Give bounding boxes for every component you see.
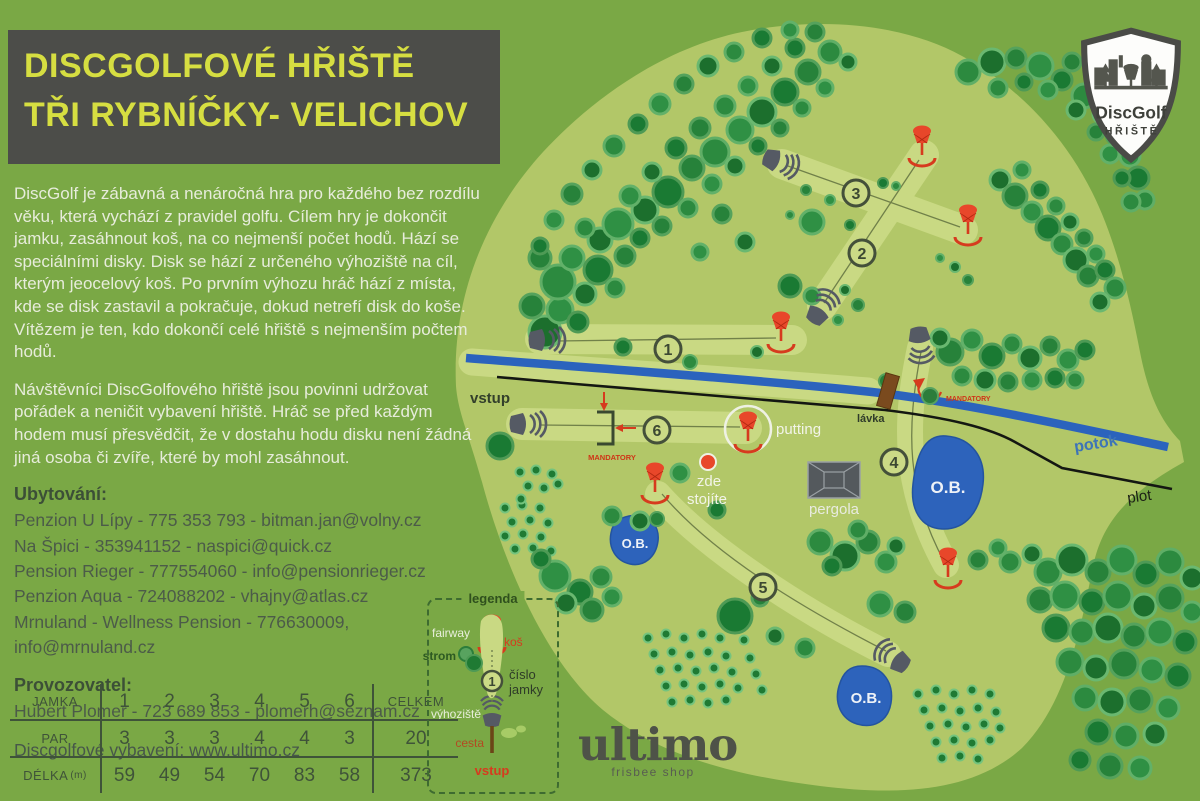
accommodation-item: Penzion U Lípy - 775 353 793 - bitman.ja… xyxy=(14,508,480,533)
tree-icon xyxy=(980,344,1004,368)
tree-icon xyxy=(583,161,601,179)
orchard-tree-icon xyxy=(532,466,541,475)
table-length-cell: 83 xyxy=(282,756,327,793)
tree-icon xyxy=(1016,74,1032,90)
orchard-tree-icon xyxy=(926,722,935,731)
tree-icon xyxy=(650,94,670,114)
orchard-tree-icon xyxy=(517,495,526,504)
orchard-tree-icon xyxy=(944,720,953,729)
orchard-tree-icon xyxy=(986,690,995,699)
orchard-tree-icon xyxy=(686,651,695,660)
tree-icon xyxy=(753,29,771,47)
tree-icon xyxy=(715,96,735,116)
tree-icon xyxy=(895,602,915,622)
orchard-tree-icon xyxy=(968,739,977,748)
tree-icon xyxy=(653,217,671,235)
tree-icon xyxy=(1039,81,1057,99)
tree-icon xyxy=(833,315,843,325)
tree-icon xyxy=(845,220,855,230)
tree-icon xyxy=(606,279,624,297)
tree-icon xyxy=(979,49,1005,75)
tree-icon xyxy=(1134,562,1158,586)
tree-icon xyxy=(999,373,1017,391)
orchard-tree-icon xyxy=(508,518,517,527)
map-label-pergola: pergola xyxy=(809,501,860,518)
orchard-tree-icon xyxy=(554,480,563,489)
tree-icon xyxy=(1099,689,1125,715)
orchard-tree-icon xyxy=(996,724,1005,733)
tree-icon xyxy=(1014,162,1030,178)
tree-icon xyxy=(725,43,743,61)
page-title-line1: DISCGOLFOVÉ HŘIŠTĚ xyxy=(24,42,484,91)
map-label-here2: stojíte xyxy=(687,491,727,508)
tree-icon xyxy=(562,184,582,204)
orchard-tree-icon xyxy=(728,668,737,677)
tree-icon xyxy=(560,246,584,270)
accommodation-heading: Ubytování: xyxy=(14,484,480,505)
tree-icon xyxy=(953,367,971,385)
tree-icon xyxy=(584,256,612,284)
orchard-tree-icon xyxy=(537,533,546,542)
table-length-cell: 54 xyxy=(192,756,237,793)
tree-icon xyxy=(801,185,811,195)
tree-icon xyxy=(1174,631,1196,653)
tree-icon xyxy=(1122,624,1146,648)
tree-icon xyxy=(1043,615,1069,641)
tree-icon xyxy=(1023,545,1041,563)
tree-icon xyxy=(748,98,776,126)
tree-icon xyxy=(1076,341,1094,359)
map-label-fence: plot xyxy=(1126,487,1153,507)
orchard-tree-icon xyxy=(992,708,1001,717)
orchard-tree-icon xyxy=(548,470,557,479)
table-length-cell: 59 xyxy=(102,756,147,793)
hole-number: 2 xyxy=(849,240,875,266)
tree-icon xyxy=(892,182,900,190)
tree-icon xyxy=(1140,658,1164,682)
tree-icon xyxy=(532,238,548,254)
table-par-cell: 4 xyxy=(282,719,327,756)
tree-icon xyxy=(975,370,995,390)
tree-icon xyxy=(868,592,892,616)
tree-icon xyxy=(1048,198,1064,214)
tree-icon xyxy=(1129,757,1151,779)
tree-icon xyxy=(931,329,949,347)
table-par-cell: 3 xyxy=(102,719,147,756)
tree-icon xyxy=(1122,193,1140,211)
tree-icon xyxy=(739,77,757,95)
orchard-tree-icon xyxy=(680,680,689,689)
tree-icon xyxy=(1027,53,1053,79)
tree-icon xyxy=(823,557,841,575)
tree-icon xyxy=(532,550,550,568)
table-hole-cell: 6 xyxy=(327,684,372,719)
tree-icon xyxy=(615,339,631,355)
tree-icon xyxy=(800,210,824,234)
tree-icon xyxy=(817,80,833,96)
orchard-tree-icon xyxy=(656,666,665,675)
map-label-mandatory-4: MANDATORY xyxy=(946,396,991,403)
tree-icon xyxy=(629,115,647,133)
hole-number: 6 xyxy=(644,417,670,443)
tree-icon xyxy=(763,57,781,75)
ob-label: O.B. xyxy=(622,536,649,551)
tree-icon xyxy=(779,275,801,297)
tree-icon xyxy=(796,639,814,657)
ob-label: O.B. xyxy=(851,690,882,707)
tree-icon xyxy=(736,233,754,251)
tree-icon xyxy=(520,294,544,318)
tree-icon xyxy=(1144,723,1166,745)
pergola-icon xyxy=(808,462,860,498)
tree-icon xyxy=(631,512,649,530)
orchard-tree-icon xyxy=(536,504,545,513)
tree-icon xyxy=(653,177,683,207)
tree-icon xyxy=(604,136,624,156)
tree-icon xyxy=(1094,614,1122,642)
orchard-tree-icon xyxy=(519,530,528,539)
tree-icon xyxy=(849,521,867,539)
tree-icon xyxy=(963,275,973,285)
tree-icon xyxy=(806,23,824,41)
info-column: DiscGolf je zábavná a nenáročná hra pro … xyxy=(14,183,480,761)
tree-icon xyxy=(631,229,649,247)
tree-icon xyxy=(956,60,980,84)
tree-icon xyxy=(990,540,1006,556)
hole-number: 4 xyxy=(881,449,907,475)
tree-icon xyxy=(1080,590,1104,614)
tree-icon xyxy=(1019,347,1041,369)
orchard-tree-icon xyxy=(698,630,707,639)
tree-icon xyxy=(1057,545,1087,575)
orchard-tree-icon xyxy=(692,667,701,676)
orchard-tree-icon xyxy=(974,755,983,764)
title-box: DISCGOLFOVÉ HŘIŠTĚ TŘI RYBNÍČKY- VELICHO… xyxy=(8,30,500,164)
legend-box: legenda xyxy=(427,598,559,794)
tree-icon xyxy=(1182,602,1200,622)
tree-icon xyxy=(1070,750,1090,770)
orchard-tree-icon xyxy=(962,723,971,732)
tree-icon xyxy=(603,209,633,239)
tree-icon xyxy=(666,138,686,158)
tree-icon xyxy=(819,41,841,63)
tree-icon xyxy=(1166,664,1190,688)
tree-icon xyxy=(703,175,721,193)
orchard-tree-icon xyxy=(956,707,965,716)
tree-icon xyxy=(1091,293,1109,311)
intro-paragraph: DiscGolf je zábavná a nenáročná hra pro … xyxy=(14,183,480,364)
tree-icon xyxy=(1003,335,1021,353)
tree-icon xyxy=(1086,560,1110,584)
orchard-tree-icon xyxy=(662,682,671,691)
svg-text:3: 3 xyxy=(852,186,861,203)
table-length-cell: 70 xyxy=(237,756,282,793)
tree-icon xyxy=(962,330,982,350)
tree-icon xyxy=(680,156,704,180)
orchard-tree-icon xyxy=(650,650,659,659)
tree-icon xyxy=(808,530,832,554)
legend-title: legenda xyxy=(461,591,524,606)
tree-icon xyxy=(1157,549,1183,575)
tree-icon xyxy=(620,186,640,206)
tree-icon xyxy=(576,219,594,237)
orchard-tree-icon xyxy=(740,636,749,645)
map-label-putting: putting xyxy=(776,421,821,438)
tree-icon xyxy=(1086,720,1110,744)
tree-icon xyxy=(794,100,810,116)
tree-icon xyxy=(698,56,718,76)
tree-icon xyxy=(692,244,708,260)
tree-icon xyxy=(1114,170,1130,186)
tree-icon xyxy=(643,163,661,181)
ultimo-name: ultimo xyxy=(578,722,728,768)
orchard-tree-icon xyxy=(516,468,525,477)
tree-icon xyxy=(989,79,1007,97)
tree-icon xyxy=(1084,656,1108,680)
tree-icon xyxy=(568,312,588,332)
tree-icon xyxy=(1098,754,1122,778)
orchard-tree-icon xyxy=(920,706,929,715)
tree-icon xyxy=(581,599,603,621)
tree-icon xyxy=(675,75,693,93)
orchard-tree-icon xyxy=(668,698,677,707)
tree-icon xyxy=(679,199,697,217)
tree-icon xyxy=(718,599,752,633)
tree-icon xyxy=(1073,686,1097,710)
orchard-tree-icon xyxy=(526,516,535,525)
tree-icon xyxy=(1157,585,1183,611)
tree-icon xyxy=(574,283,596,305)
tree-icon xyxy=(603,588,621,606)
tree-icon xyxy=(1110,650,1138,678)
orchard-tree-icon xyxy=(716,680,725,689)
orchard-tree-icon xyxy=(524,482,533,491)
tree-icon xyxy=(852,299,864,311)
tree-icon xyxy=(615,246,635,266)
page-title-line2: TŘI RYBNÍČKY- VELICHOV xyxy=(24,91,484,140)
tree-icon xyxy=(1032,182,1048,198)
tree-icon xyxy=(1028,588,1052,612)
hole-number: 5 xyxy=(750,574,776,600)
table-par-cell: 4 xyxy=(237,719,282,756)
orchard-tree-icon xyxy=(722,652,731,661)
orchard-tree-icon xyxy=(644,634,653,643)
orchard-tree-icon xyxy=(938,754,947,763)
orchard-tree-icon xyxy=(746,654,755,663)
table-hole-cell: 4 xyxy=(237,684,282,719)
badge-sub: HŘIŠTĚ xyxy=(1105,125,1159,138)
rules-paragraph: Návštěvníci DiscGolfového hřiště jsou po… xyxy=(14,379,480,469)
tree-icon xyxy=(713,205,731,223)
tree-icon xyxy=(751,346,763,358)
tree-icon xyxy=(1041,337,1059,355)
orchard-tree-icon xyxy=(950,736,959,745)
accommodation-item: Pension Rieger - 777554060 - info@pensio… xyxy=(14,559,480,584)
tree-icon xyxy=(1076,230,1092,246)
shield-shape xyxy=(1084,31,1178,159)
tree-icon xyxy=(1128,688,1152,712)
orchard-tree-icon xyxy=(716,634,725,643)
tree-icon xyxy=(1070,620,1094,644)
tree-icon xyxy=(1062,214,1078,230)
tree-icon xyxy=(603,507,621,525)
tree-icon xyxy=(772,79,798,105)
orchard-tree-icon xyxy=(686,696,695,705)
accommodation-item: Mrnuland - Wellness Pension - 776630009,… xyxy=(14,610,480,661)
orchard-tree-icon xyxy=(968,686,977,695)
orchard-tree-icon xyxy=(932,686,941,695)
orchard-tree-icon xyxy=(668,648,677,657)
table-hole-cell: 2 xyxy=(147,684,192,719)
tree-icon xyxy=(727,117,753,143)
tree-icon xyxy=(786,39,804,57)
svg-text:5: 5 xyxy=(759,580,768,597)
hole-number: 3 xyxy=(843,180,869,206)
tree-icon xyxy=(772,120,788,136)
table-par-cell: 3 xyxy=(192,719,237,756)
tree-icon xyxy=(786,211,794,219)
tree-icon xyxy=(1006,48,1026,68)
tree-icon xyxy=(487,433,513,459)
orchard-tree-icon xyxy=(752,670,761,679)
orchard-tree-icon xyxy=(698,683,707,692)
tree-icon xyxy=(683,355,697,369)
svg-text:2: 2 xyxy=(858,246,867,263)
tree-icon xyxy=(650,512,664,526)
orchard-tree-icon xyxy=(710,664,719,673)
map-label-here1: zde xyxy=(697,473,721,490)
orchard-tree-icon xyxy=(501,504,510,513)
svg-text:1: 1 xyxy=(664,342,673,359)
table-length-cell: 49 xyxy=(147,756,192,793)
tree-icon xyxy=(767,628,783,644)
table-header-hole: JAMKA xyxy=(10,684,102,719)
table-length-cell: 58 xyxy=(327,756,372,793)
tree-icon xyxy=(1057,649,1083,675)
tree-icon xyxy=(545,211,563,229)
poster: 1 2 3 4 5 6 1 vstup putting zde stojíte … xyxy=(0,0,1200,801)
tree-icon xyxy=(969,551,987,569)
tree-icon xyxy=(1104,582,1132,610)
accommodation-item: Na Špici - 353941152 - naspici@quick.cz xyxy=(14,534,480,559)
you-are-here-dot xyxy=(700,454,716,470)
tree-icon xyxy=(1157,697,1179,719)
tree-icon xyxy=(840,285,850,295)
table-par-cell: 3 xyxy=(147,719,192,756)
tree-icon xyxy=(950,262,960,272)
orchard-tree-icon xyxy=(734,684,743,693)
tree-icon xyxy=(1051,582,1079,610)
svg-text:6: 6 xyxy=(653,423,662,440)
orchard-tree-icon xyxy=(544,519,553,528)
tree-icon xyxy=(1114,724,1138,748)
table-hole-cell: 1 xyxy=(102,684,147,719)
tree-icon xyxy=(840,54,856,70)
tree-icon xyxy=(1023,371,1041,389)
tree-icon xyxy=(1046,369,1064,387)
orchard-tree-icon xyxy=(986,736,995,745)
orchard-tree-icon xyxy=(511,545,520,554)
tree-icon xyxy=(1147,619,1173,645)
orchard-tree-icon xyxy=(680,634,689,643)
tree-icon xyxy=(1132,594,1156,618)
orchard-tree-icon xyxy=(704,648,713,657)
badge-logo: DiscGolf HŘIŠTĚ xyxy=(1078,26,1184,166)
tree-icon xyxy=(726,157,744,175)
tree-icon xyxy=(796,60,820,84)
hole-number: 1 xyxy=(655,336,681,362)
orchard-tree-icon xyxy=(980,720,989,729)
map-label-mandatory-6: MANDATORY xyxy=(588,453,636,462)
tree-icon xyxy=(878,178,888,188)
table-par-cell: 3 xyxy=(327,719,372,756)
orchard-tree-icon xyxy=(662,630,671,639)
tree-icon xyxy=(671,464,689,482)
tree-icon xyxy=(556,593,576,613)
orchard-tree-icon xyxy=(540,484,549,493)
table-hole-cell: 3 xyxy=(192,684,237,719)
tree-icon xyxy=(825,195,835,205)
badge-name: DiscGolf xyxy=(1095,102,1166,122)
table-hole-cell: 5 xyxy=(282,684,327,719)
tree-icon xyxy=(591,567,611,587)
tree-icon xyxy=(782,22,798,38)
tree-icon xyxy=(888,538,904,554)
tree-icon xyxy=(1181,567,1200,589)
tree-icon xyxy=(1067,372,1083,388)
tree-icon xyxy=(701,138,729,166)
orchard-tree-icon xyxy=(704,699,713,708)
tree-icon xyxy=(1105,278,1125,298)
score-table: JAMKA 1 2 3 4 5 6 CELKEM PAR 3 3 3 4 4 3… xyxy=(10,684,458,793)
orchard-tree-icon xyxy=(758,686,767,695)
orchard-tree-icon xyxy=(950,690,959,699)
map-label-bridge: lávka xyxy=(857,413,885,425)
orchard-tree-icon xyxy=(932,738,941,747)
tree-icon xyxy=(936,254,944,262)
tree-icon xyxy=(690,118,710,138)
orchard-tree-icon xyxy=(722,696,731,705)
orchard-tree-icon xyxy=(938,704,947,713)
svg-text:4: 4 xyxy=(890,455,899,472)
orchard-tree-icon xyxy=(914,690,923,699)
tree-icon xyxy=(1088,246,1104,262)
tree-icon xyxy=(1096,261,1114,279)
orchard-tree-icon xyxy=(956,752,965,761)
orchard-tree-icon xyxy=(674,664,683,673)
orchard-tree-icon xyxy=(974,704,983,713)
tree-icon xyxy=(750,138,766,154)
table-header-par: PAR xyxy=(10,719,102,756)
ultimo-logo: ultimo frisbee shop xyxy=(578,722,728,779)
orchard-tree-icon xyxy=(501,532,510,541)
ob-label: O.B. xyxy=(931,478,966,497)
table-header-length: DÉLKA (m) xyxy=(10,756,102,793)
tree-icon xyxy=(1108,546,1136,574)
accommodation-item: Penzion Aqua - 724088202 - vhajny@atlas.… xyxy=(14,584,480,609)
